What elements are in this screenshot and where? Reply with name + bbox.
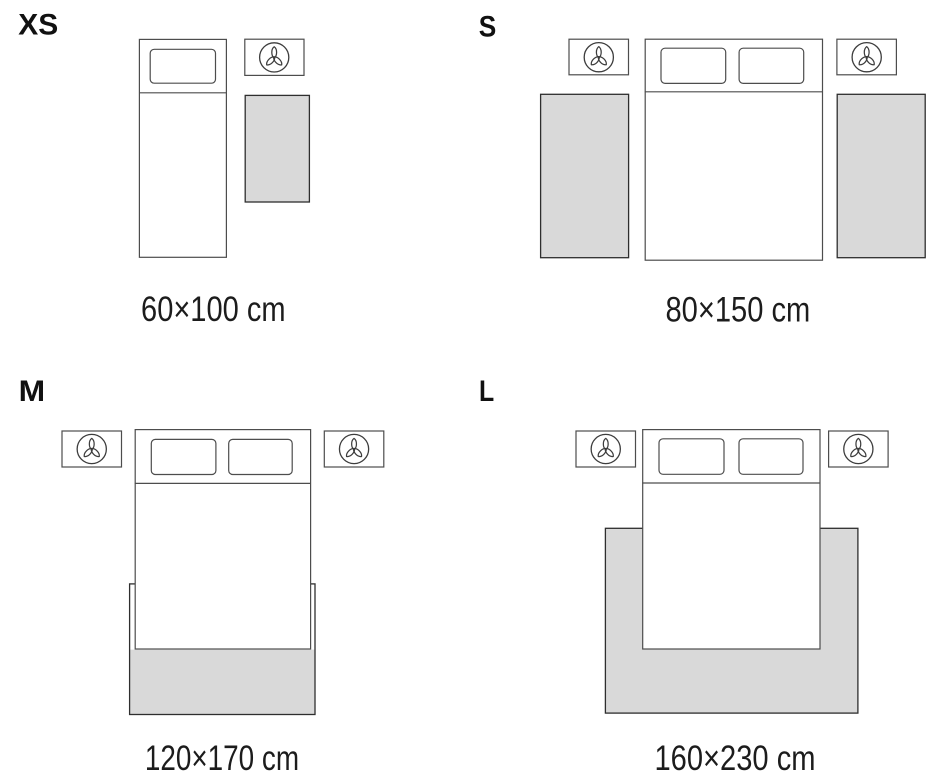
svg-text:120×170 cm: 120×170 cm: [145, 739, 299, 778]
svg-text:S: S: [479, 11, 497, 44]
svg-text:160×230 cm: 160×230 cm: [655, 739, 816, 778]
svg-text:L: L: [479, 375, 494, 408]
svg-text:60×100 cm: 60×100 cm: [141, 290, 286, 329]
svg-text:M: M: [19, 375, 45, 408]
svg-text:80×150 cm: 80×150 cm: [666, 291, 811, 330]
svg-text:XS: XS: [18, 8, 58, 41]
